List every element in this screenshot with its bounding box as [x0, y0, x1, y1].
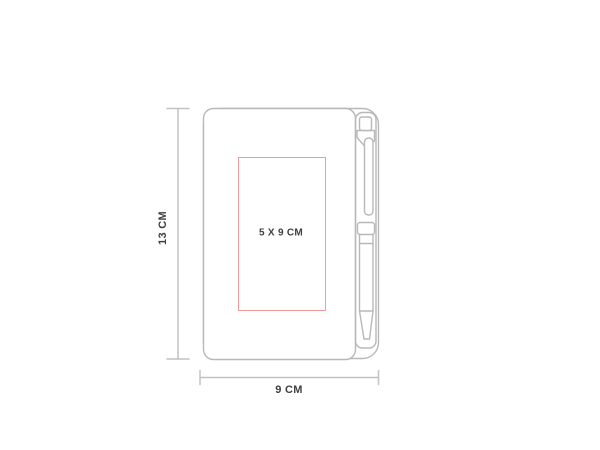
height-dimension-line — [167, 109, 189, 360]
pen-clip — [365, 138, 374, 215]
width-dimension-line — [200, 371, 379, 385]
width-dimension-label: 9 CM — [275, 384, 302, 396]
pen-band — [358, 223, 375, 235]
height-dimension-label: 13 CM — [157, 211, 169, 245]
print-area-label: 5 X 9 CM — [259, 228, 303, 239]
pen-button — [360, 117, 372, 131]
product-dimension-diagram: 13 CM 9 CM 5 X 9 CM — [0, 0, 600, 450]
